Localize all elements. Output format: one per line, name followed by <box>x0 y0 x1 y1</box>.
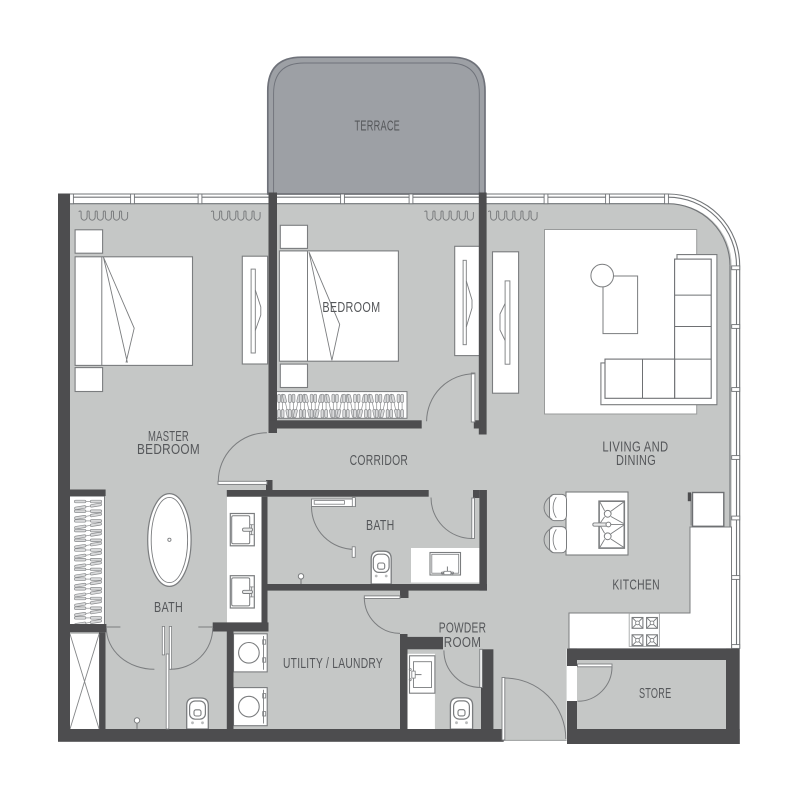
svg-text:ROOM: ROOM <box>444 634 482 651</box>
svg-text:DINING: DINING <box>616 452 656 469</box>
svg-text:UTILITY / LAUNDRY: UTILITY / LAUNDRY <box>283 655 383 672</box>
svg-text:KITCHEN: KITCHEN <box>612 577 660 594</box>
svg-text:BATH: BATH <box>366 517 395 534</box>
svg-text:STORE: STORE <box>639 685 672 702</box>
svg-text:CORRIDOR: CORRIDOR <box>350 452 409 469</box>
svg-text:BEDROOM: BEDROOM <box>137 441 200 458</box>
svg-text:BEDROOM: BEDROOM <box>322 299 380 316</box>
svg-text:BATH: BATH <box>154 599 183 616</box>
svg-text:TERRACE: TERRACE <box>355 118 401 135</box>
